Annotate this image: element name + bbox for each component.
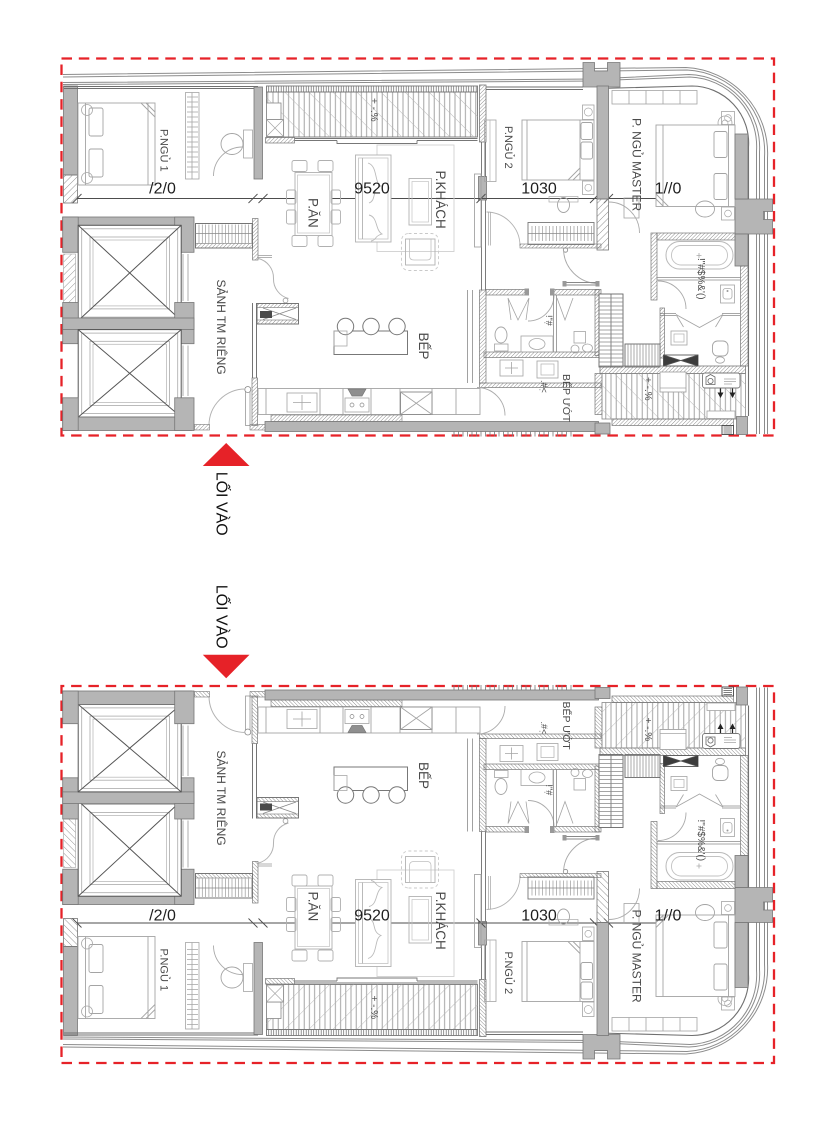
svg-text:+ -.%: + -.% [368,996,379,1020]
svg-text:LỐI VÀO: LỐI VÀO [212,472,232,536]
svg-text:P.NGỦ 1: P.NGỦ 1 [158,949,171,992]
svg-text:P. NGỦ MASTER: P. NGỦ MASTER [630,910,645,1003]
svg-text:+ -.%: + -.% [642,718,653,742]
svg-text:1//0: 1//0 [655,181,682,198]
svg-text:BẾP ƯỚT: BẾP ƯỚT [560,374,573,423]
svg-text:P.KHÁCH: P.KHÁCH [433,892,448,950]
svg-text:9520: 9520 [354,908,390,925]
svg-text:.#<̣: .#<̣ [539,380,549,393]
svg-text:9520: 9520 [354,181,390,198]
svg-text:P.NGỦ 2: P.NGỦ 2 [502,126,515,169]
svg-text:P. NGỦ MASTER: P. NGỦ MASTER [630,118,645,211]
svg-text:1030: 1030 [521,908,557,925]
svg-text:1//0: 1//0 [655,908,682,925]
svg-text:SẢNH TM RIÊNG: SẢNH TM RIÊNG [214,751,229,846]
svg-text:BẾP ƯỚT: BẾP ƯỚT [560,702,573,751]
svg-text:.#<̣: .#<̣ [539,722,549,735]
svg-text:P.ĂN: P.ĂN [306,198,321,228]
svg-text:!"#̣: !"#̣ [544,315,554,326]
svg-text:+ -.%: + -.% [642,377,653,401]
svg-text:BẾP: BẾP [416,333,431,360]
svg-text:+ -.%: + -.% [368,98,379,122]
svg-text:!"#̣: !"#̣ [544,785,554,796]
svg-text:P.KHÁCH: P.KHÁCH [433,171,448,229]
svg-text:P.NGỦ 1: P.NGỦ 1 [158,129,171,172]
svg-text:P.ĂN: P.ĂN [306,892,321,922]
svg-text:SẢNH TM RIÊNG: SẢNH TM RIÊNG [214,280,229,375]
svg-text:LỐI VÀO: LỐI VÀO [212,585,232,649]
svg-text:1030: 1030 [521,181,557,198]
svg-text:!"#$%&'(): !"#$%&'() [695,258,706,300]
svg-text:BẾP: BẾP [416,762,431,789]
svg-text:!"#$%&'(): !"#$%&'() [695,820,706,862]
svg-text:P.NGỦ 2: P.NGỦ 2 [502,952,515,995]
svg-text:/2/0: /2/0 [149,908,176,925]
svg-text:/2/0: /2/0 [149,181,176,198]
